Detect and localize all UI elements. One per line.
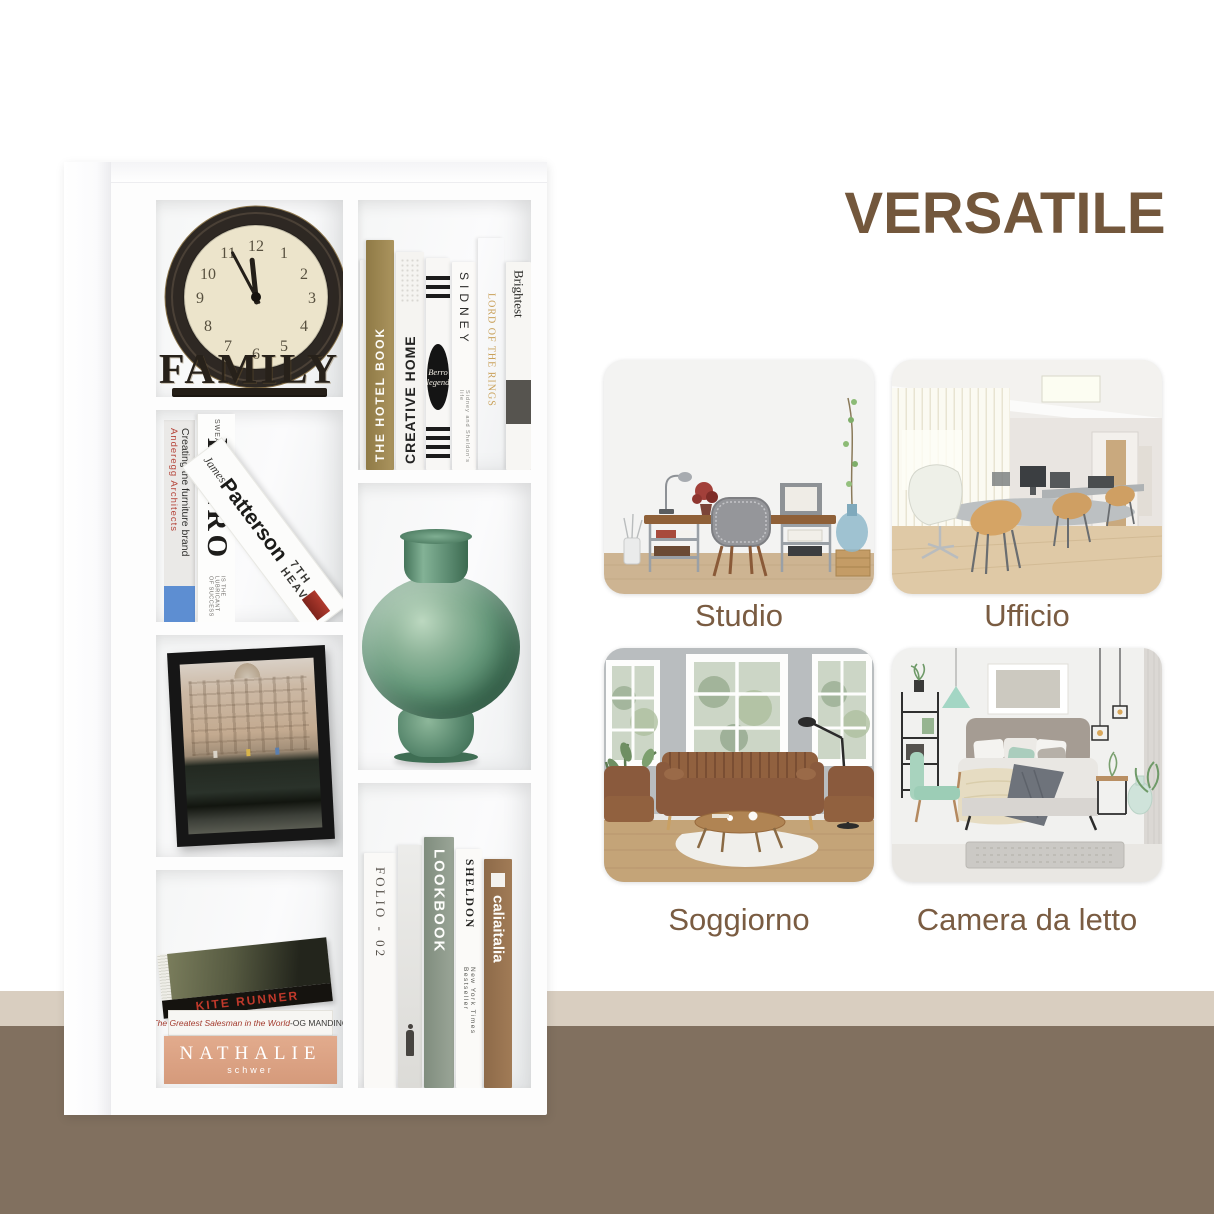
black-picture-frame bbox=[167, 645, 335, 847]
svg-text:9: 9 bbox=[196, 290, 204, 307]
label-soggiorno: Soggiorno bbox=[604, 902, 874, 938]
lotr-title: LORD OF THE RINGS bbox=[486, 293, 497, 440]
soggiorno-scene bbox=[604, 648, 874, 882]
book-anderegg: Anderegg Architects Creating the furnitu… bbox=[164, 420, 195, 622]
cubby-clock: 12 1 2 3 4 5 6 7 8 9 10 11 bbox=[156, 200, 343, 397]
brightest-gray-block bbox=[506, 380, 531, 424]
book-nathalie: NATHALIE schwer bbox=[164, 1036, 337, 1084]
cubby-top-books: THE HOTEL BOOK CREATIVE HOME Berro legen… bbox=[358, 200, 531, 470]
book-sidney: SIDNEY Sidney and Sheldon's life bbox=[452, 262, 476, 470]
book-evero-subtitle: IS THE LUBRICANT OF SUCCESS bbox=[208, 576, 226, 622]
berro-line2: legend bbox=[427, 377, 450, 387]
flag-blue bbox=[275, 748, 279, 755]
salesman-title-text: The Greatest Salesman in the World bbox=[156, 1018, 290, 1028]
ufficio-scene bbox=[892, 360, 1162, 594]
product-marketing-image: 12 1 2 3 4 5 6 7 8 9 10 11 bbox=[0, 0, 1214, 1214]
building-photo bbox=[180, 658, 323, 835]
book-lookbook: LOOKBOOK bbox=[424, 837, 454, 1088]
svg-text:12: 12 bbox=[248, 238, 264, 255]
sidney-subtitle: Sidney and Sheldon's life bbox=[458, 390, 470, 464]
book-sheldon: SHELDON New York Times Bestseller bbox=[456, 849, 482, 1088]
lookbook-title: LOOKBOOK bbox=[431, 849, 448, 1059]
caliaitalia-title: caliaitalia bbox=[490, 895, 507, 1065]
cubby-bottom-books: FOLIO - 02 LOOKBOOK SHELDON New York Tim… bbox=[358, 783, 531, 1088]
book-evero-top-text: SWEAT bbox=[213, 419, 220, 435]
vase-body bbox=[362, 575, 520, 719]
book-lord-of-the-rings: LORD OF THE RINGS bbox=[478, 238, 504, 470]
book-brightest: Brightest bbox=[506, 262, 531, 470]
photo-soggiorno bbox=[604, 648, 874, 882]
svg-text:1: 1 bbox=[280, 245, 288, 262]
sidney-title: SIDNEY bbox=[457, 272, 471, 382]
book-greatest-salesman: The Greatest Salesman in the World -OG M… bbox=[168, 1010, 333, 1036]
photo-ufficio bbox=[892, 360, 1162, 594]
svg-text:4: 4 bbox=[300, 318, 308, 335]
svg-text:3: 3 bbox=[308, 290, 316, 307]
book-anderegg-blue-band bbox=[164, 586, 195, 622]
bookcase-top-panel bbox=[64, 162, 547, 183]
label-camera-da-letto: Camera da letto bbox=[892, 902, 1162, 938]
book-creative-home: CREATIVE HOME bbox=[396, 252, 424, 470]
figure-silhouette bbox=[406, 1030, 414, 1056]
camera-scene bbox=[892, 648, 1162, 882]
book-folio: FOLIO - 02 bbox=[364, 853, 396, 1088]
versatile-heading: VERSATILE bbox=[840, 180, 1170, 247]
brightest-title: Brightest bbox=[511, 270, 527, 375]
berro-oval-label: Berro legend bbox=[427, 344, 449, 410]
folio-title: FOLIO - 02 bbox=[372, 867, 388, 1062]
vase-rim bbox=[400, 529, 472, 544]
nathalie-title: NATHALIE bbox=[164, 1043, 337, 1065]
book-berro-legend: Berro legend bbox=[426, 258, 450, 470]
salesman-author-text: -OG MANDINO bbox=[290, 1018, 343, 1028]
clock-base-plinth bbox=[172, 388, 327, 395]
hotel-book-title: THE HOTEL BOOK bbox=[373, 248, 387, 462]
studio-scene bbox=[604, 360, 874, 594]
flag-yellow bbox=[246, 749, 250, 756]
photo-studio bbox=[604, 360, 874, 594]
cubby-stacked-books: KITE RUNNER The Greatest Salesman in the… bbox=[156, 870, 343, 1088]
label-studio: Studio bbox=[604, 598, 874, 634]
svg-text:10: 10 bbox=[200, 266, 216, 283]
label-ufficio: Ufficio bbox=[892, 598, 1162, 634]
nathalie-subtitle: schwer bbox=[164, 1065, 337, 1075]
bookcase-side-panel bbox=[64, 162, 111, 1115]
berro-bottom-bars bbox=[426, 422, 450, 458]
book-plain-gray bbox=[398, 845, 422, 1088]
photo-camera-da-letto bbox=[892, 648, 1162, 882]
berro-line1: Berro bbox=[428, 367, 448, 377]
white-bookcase: 12 1 2 3 4 5 6 7 8 9 10 11 bbox=[64, 162, 547, 1115]
cubby-green-vase bbox=[358, 483, 531, 770]
family-clock-base: FAMILY bbox=[158, 349, 341, 391]
book-kite-runner: KITE RUNNER bbox=[157, 937, 333, 1018]
creative-home-title: CREATIVE HOME bbox=[402, 304, 418, 464]
cubby-design-books: Anderegg Architects Creating the furnitu… bbox=[156, 410, 343, 622]
cubby-picture-frame bbox=[156, 635, 343, 857]
book-hotel: THE HOTEL BOOK bbox=[366, 240, 394, 470]
berro-top-bars bbox=[426, 272, 450, 298]
flag-white bbox=[214, 751, 218, 758]
book-caliaitalia: caliaitalia bbox=[484, 859, 512, 1088]
caliaitalia-logo-square bbox=[491, 873, 505, 887]
sheldon-title: SHELDON bbox=[463, 859, 475, 959]
svg-text:8: 8 bbox=[204, 318, 212, 335]
sheldon-subtitle: New York Times Bestseller bbox=[462, 967, 476, 1080]
svg-text:2: 2 bbox=[300, 266, 308, 283]
